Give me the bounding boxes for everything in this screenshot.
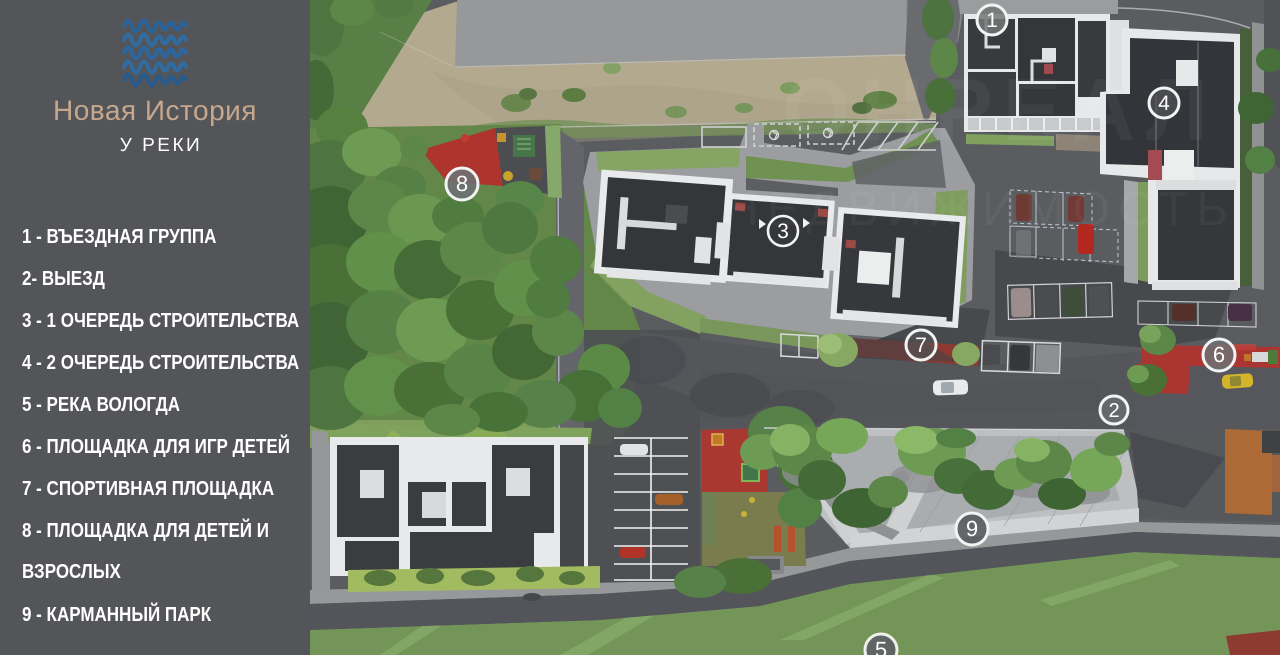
svg-text:7: 7 xyxy=(915,334,927,357)
svg-text:4: 4 xyxy=(1158,92,1170,115)
svg-text:2: 2 xyxy=(1108,400,1119,422)
svg-text:НЕДВИЖИМОСТЬ: НЕДВИЖИМОСТЬ xyxy=(724,183,1236,236)
svg-text:5: 5 xyxy=(875,637,887,655)
svg-text:6: 6 xyxy=(1213,342,1225,367)
svg-text:8: 8 xyxy=(456,171,468,196)
svg-text:9: 9 xyxy=(966,516,978,541)
svg-text:1: 1 xyxy=(986,9,998,32)
svg-text:3: 3 xyxy=(777,220,789,243)
